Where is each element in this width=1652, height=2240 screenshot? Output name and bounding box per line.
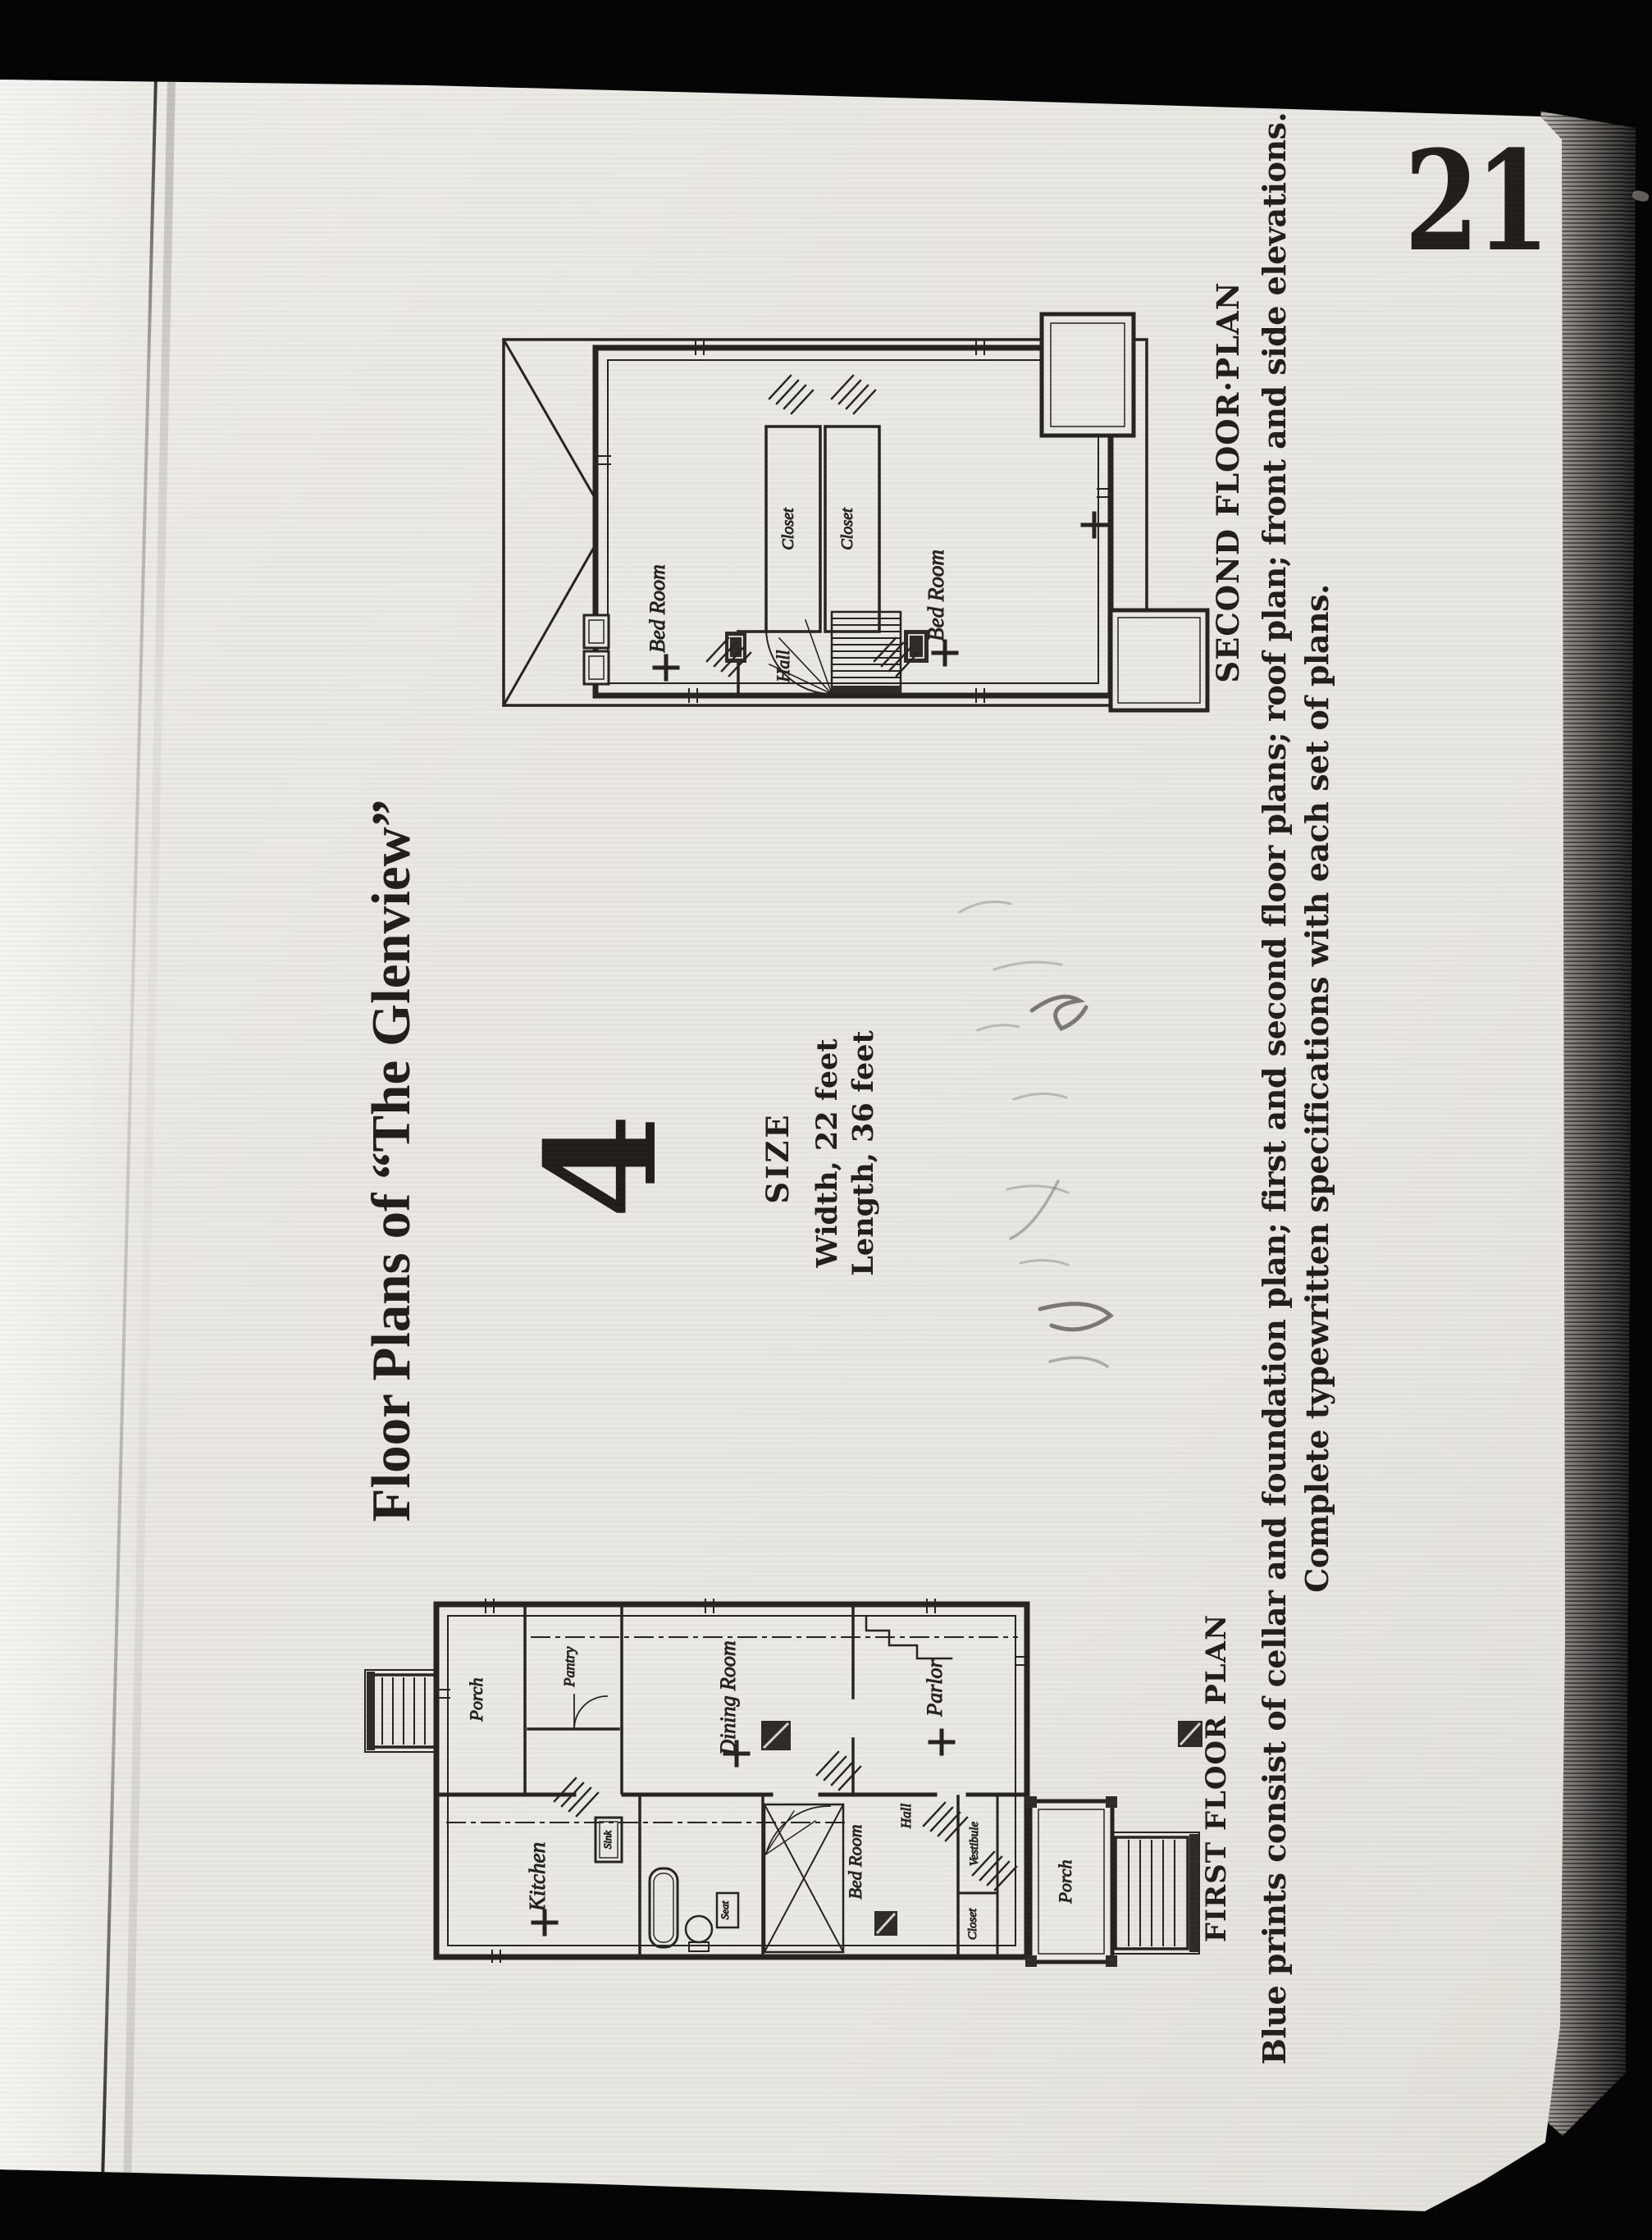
room-label: Porch [1055,1860,1075,1905]
size-dimensions: Width, 22 feet Length, 36 feet [808,1022,883,1284]
room-label: Closet [779,508,797,550]
room-label: Bed Room [845,1824,865,1899]
page-title: Floor Plans of “The Glenview” [350,759,432,1563]
page-left-sheen [0,74,139,2178]
room-label: Kitchen [525,1842,550,1912]
page-number: 21 [1417,131,1573,271]
room-label: Hall [773,650,793,682]
room-label: Seat [719,1900,731,1919]
blueprint-note-line1: Blue prints consist of cellar and founda… [1253,112,1296,2064]
room-label: Bed Room [924,550,948,641]
first-floor-plan-drawing: Porch Pantry Dining Room Parlor Kitchen … [361,1583,1206,1969]
handwritten-annotation [935,837,1148,1394]
front-steps [1112,1832,1199,1954]
design-number: 4 [519,1084,683,1248]
room-label: Pantry [561,1646,577,1687]
room-label: Closet [838,508,856,550]
size-length: Length, 36 feet [846,1030,882,1275]
room-label: Closet [966,1908,979,1940]
room-label: Vestibule [968,1822,981,1866]
room-label: Porch [466,1678,486,1722]
room-label: Bed Room [646,564,669,653]
room-label: Dining Room [716,1640,740,1755]
second-floor-plan-drawing: Bed Room Closet Closet Bed Room Hall [492,295,1230,730]
room-label: Hall [898,1804,914,1830]
page-number-text: 21 [1404,120,1546,282]
size-heading: SIZE [753,1076,802,1240]
dormer-top-right [1042,314,1134,436]
blueprint-note-line2: Complete typewritten specifications with… [1296,584,1339,1592]
blueprint-note: Blue prints consist of cellar and founda… [1252,272,1340,1905]
scanned-book-page: 21 Floor Plans of “The Glenview” 4 SIZE … [0,0,1652,2240]
room-label: Parlor [923,1658,947,1717]
room-label: Sink [601,1831,614,1850]
porch-roof-bottom-right [1111,610,1207,710]
rear-steps [365,1670,442,1752]
size-width: Width, 22 feet [810,1038,846,1267]
page: 21 Floor Plans of “The Glenview” 4 SIZE … [0,0,1570,2218]
